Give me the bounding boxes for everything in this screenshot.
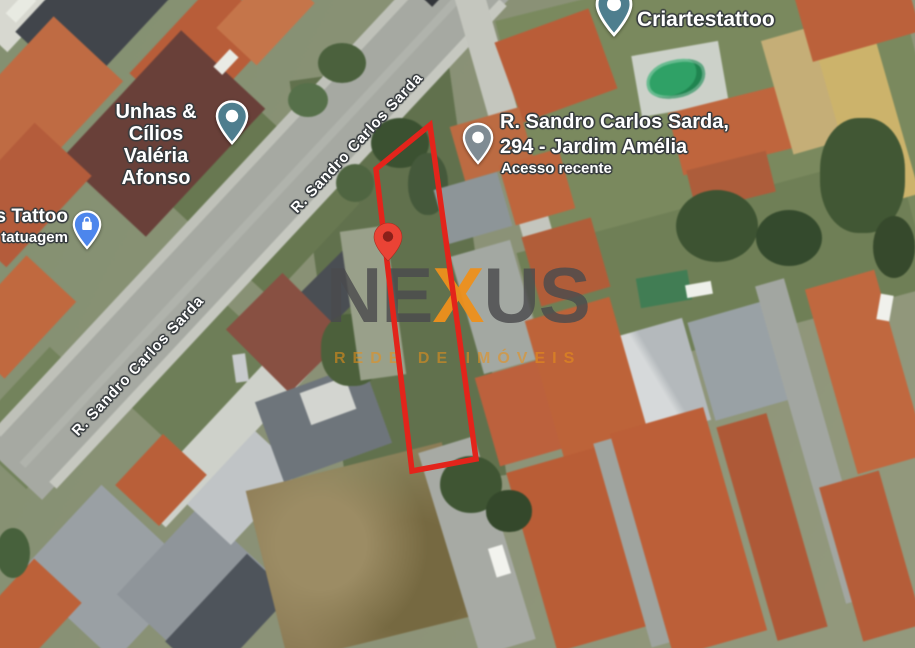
tree	[676, 190, 758, 262]
tree	[486, 490, 532, 532]
recent-place-title-line: R. Sandro Carlos Sarda,	[500, 110, 729, 135]
recent-place-subtitle: Acesso recente	[501, 160, 612, 177]
satellite-basemap	[0, 0, 915, 648]
poi-label[interactable]: os Tattoo e tatuagem	[0, 206, 68, 248]
satellite-map-view[interactable]: R. Sandro Carlos Sarda R. Sandro Carlos …	[0, 0, 915, 648]
tree	[873, 216, 915, 278]
place-pin-icon[interactable]	[594, 0, 634, 38]
recent-place-pin-icon[interactable]	[462, 122, 494, 166]
recent-place-title[interactable]: R. Sandro Carlos Sarda, 294 - Jardim Amé…	[500, 110, 729, 160]
tree	[288, 83, 328, 117]
poi-label-line: e tatuagem	[0, 227, 68, 248]
poi-label-line: os Tattoo	[0, 206, 68, 227]
poi-label-line: Unhas & Cílios	[90, 101, 222, 145]
tree	[756, 210, 822, 266]
shopping-bag-pin-icon[interactable]	[72, 210, 102, 250]
poi-label-line: Valéria Afonso	[90, 145, 222, 189]
tree	[318, 43, 366, 83]
poi-label[interactable]: Criartestattoo	[637, 8, 775, 32]
recent-place-title-line: 294 - Jardim Amélia	[500, 135, 729, 160]
poi-label[interactable]: Unhas & Cílios Valéria Afonso	[90, 101, 222, 189]
